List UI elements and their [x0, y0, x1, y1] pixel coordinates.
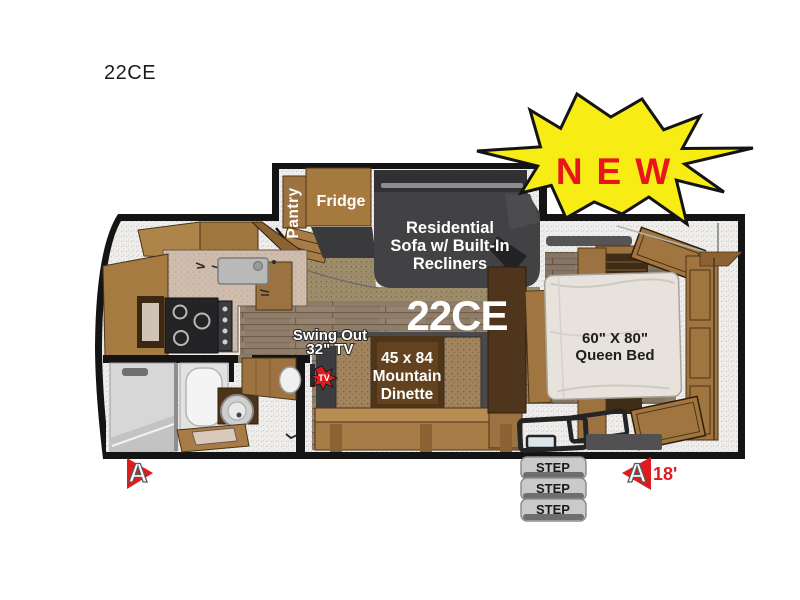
svg-text:Fridge: Fridge [317, 193, 366, 210]
svg-text:NEW: NEW [556, 151, 684, 192]
svg-text:A: A [627, 458, 647, 488]
svg-text:Sofa w/ Built-In: Sofa w/ Built-In [390, 237, 509, 255]
svg-text:22CE: 22CE [104, 62, 156, 84]
svg-text:Mountain: Mountain [373, 368, 442, 385]
svg-text:Residential: Residential [406, 219, 494, 237]
svg-text:18': 18' [653, 464, 677, 484]
svg-text:22CE: 22CE [406, 292, 507, 339]
svg-text:STEP: STEP [536, 502, 570, 517]
svg-text:Recliners: Recliners [413, 255, 487, 273]
svg-text:STEP: STEP [536, 460, 570, 475]
svg-text:60" X 80": 60" X 80" [582, 330, 648, 347]
svg-text:TV: TV [318, 373, 330, 383]
svg-text:Dinette: Dinette [381, 386, 434, 403]
svg-text:Queen Bed: Queen Bed [575, 347, 654, 364]
svg-text:STEP: STEP [536, 481, 570, 496]
svg-text:A: A [128, 458, 148, 488]
svg-text:Pantry: Pantry [285, 187, 302, 238]
svg-text:45 x 84: 45 x 84 [381, 350, 433, 367]
svg-text:32" TV: 32" TV [306, 341, 353, 358]
